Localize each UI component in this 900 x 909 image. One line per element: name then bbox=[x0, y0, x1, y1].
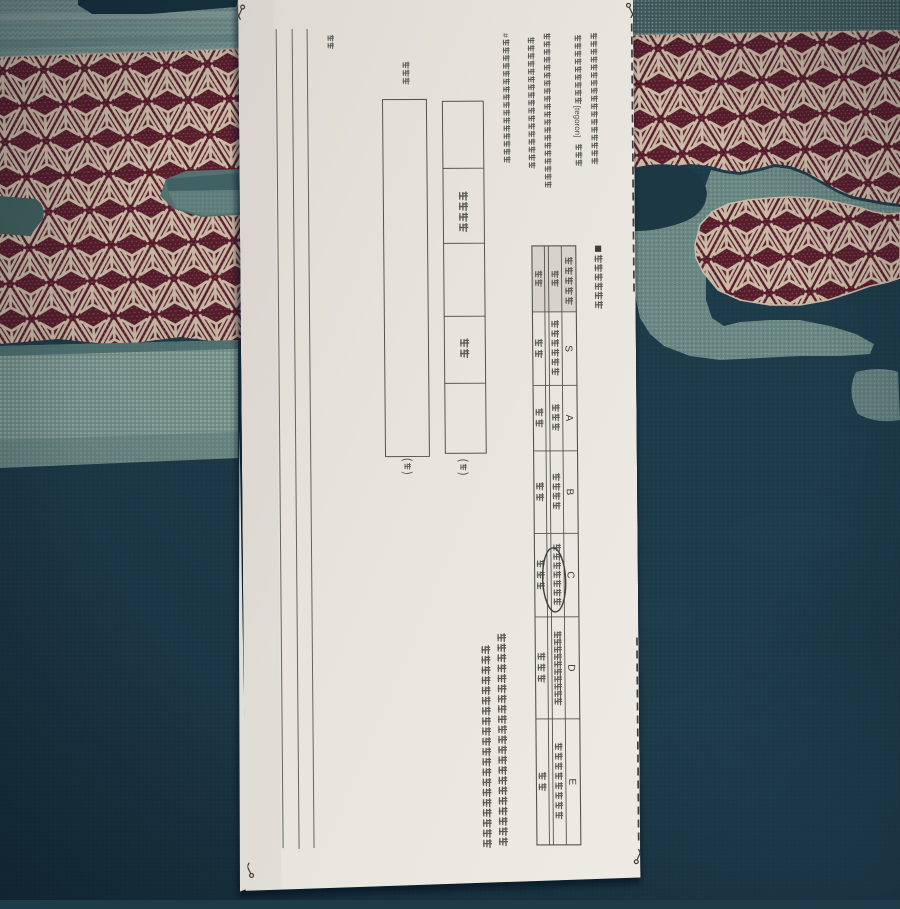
svg-text:D: D bbox=[565, 664, 576, 671]
svg-text:[tegoron]: [tegoron] bbox=[573, 106, 582, 138]
svg-text:A: A bbox=[563, 415, 574, 422]
svg-text:#: # bbox=[501, 33, 510, 38]
svg-text:B: B bbox=[564, 489, 575, 496]
svg-text:E: E bbox=[566, 778, 577, 785]
svg-text:S: S bbox=[563, 345, 574, 352]
